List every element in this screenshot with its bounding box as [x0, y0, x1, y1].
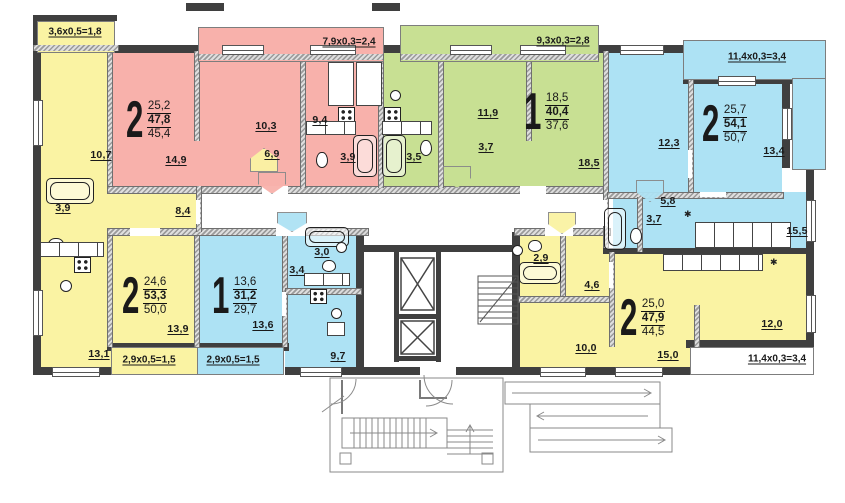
apartment-reduced-area: 44,5: [641, 326, 665, 339]
apartment-rooms-count: 2: [126, 100, 142, 140]
entrance-ramp: [505, 382, 672, 452]
room-area-label: 13,6: [252, 319, 273, 331]
apartment-total-area: 54,1: [723, 118, 747, 132]
apartment-total-area: 47,9: [641, 312, 665, 326]
apartment-living-area: 13,6: [233, 276, 257, 290]
apartment-label: 2 25,2 47,8 45,4: [126, 100, 171, 141]
apartment-total-area: 31,2: [233, 290, 257, 304]
column: [482, 453, 493, 464]
balcony-area-label: 2,9x0,5=1,5: [122, 355, 175, 366]
room-area-label: 3,5: [406, 151, 421, 163]
apartment-label: 1 18,5 40,4 37,6: [524, 92, 569, 133]
room-area-label: 12,0: [761, 318, 782, 330]
room-area-label: 11,9: [478, 107, 499, 119]
room-area-label: 18,5: [578, 157, 599, 169]
floor-plan: ✱ ✱: [0, 0, 845, 503]
room-area-label: 9,4: [312, 114, 327, 126]
room-area-label: 12,3: [658, 137, 679, 149]
apartment-label: 2 25,7 54,1 50,7: [702, 104, 747, 145]
apartment-reduced-area: 50,7: [723, 132, 747, 145]
balcony-area-label: 11,4x0,3=3,4: [728, 52, 786, 63]
room-area-label: 3,7: [478, 141, 493, 153]
entry-steps: [447, 425, 493, 454]
balcony-area-label: 3,6x0,5=1,8: [48, 27, 101, 38]
apartment-living-area: 25,0: [641, 298, 665, 312]
room-area-label: 6,9: [264, 148, 279, 160]
balcony-area-label: 9,3x0,3=2,8: [536, 36, 589, 47]
room-area-label: 9,7: [330, 350, 345, 362]
room-area-label: 13,4: [763, 145, 784, 157]
apartment-reduced-area: 29,7: [233, 304, 257, 317]
apartment-total-area: 40,4: [545, 106, 569, 120]
room-area-label: 14,9: [165, 154, 186, 166]
balcony-area-label: 2,9x0,5=1,5: [206, 355, 259, 366]
room-area-label: 10,0: [575, 342, 596, 354]
apartment-living-area: 24,6: [143, 276, 167, 290]
apartment-rooms-count: 1: [212, 276, 228, 316]
room-area-label: 13,9: [167, 323, 188, 335]
apartment-rooms-count: 1: [524, 92, 540, 132]
apartment-total-area: 53,3: [143, 290, 167, 304]
staircase-core: [478, 276, 518, 324]
apartment-living-area: 25,2: [147, 100, 171, 114]
room-area-label: 13,1: [88, 348, 109, 360]
elevator-shaft: [401, 258, 434, 310]
apartment-label: 1 13,6 31,2 29,7: [212, 276, 257, 317]
room-area-label: 5,8: [660, 195, 675, 207]
entrance-structure: [322, 375, 672, 472]
apartment-total-area: 47,8: [147, 114, 171, 128]
apartment-reduced-area: 37,6: [545, 120, 569, 133]
room-area-label: 2,9: [533, 252, 548, 264]
room-area-label: 10,7: [90, 149, 111, 161]
plan-linework: [0, 0, 845, 503]
apartment-reduced-area: 50,0: [143, 304, 167, 317]
room-area-label: 4,6: [584, 279, 599, 291]
room-area-label: 3,9: [55, 202, 70, 214]
apartment-living-area: 18,5: [545, 92, 569, 106]
elevator-shaft: [401, 321, 434, 354]
entrance-stairs: [342, 418, 447, 448]
balcony-area-label: 7,9x0,3=2,4: [322, 37, 375, 48]
apartment-rooms-count: 2: [702, 104, 718, 144]
room-area-label: 3,7: [646, 213, 661, 225]
room-area-label: 15,5: [786, 225, 807, 237]
apartment-rooms-count: 2: [122, 276, 138, 316]
balcony-area-label: 11,4x0,3=3,4: [748, 354, 806, 365]
room-area-label: 8,4: [175, 205, 190, 217]
column: [340, 453, 351, 464]
room-area-label: 3,4: [289, 264, 304, 276]
room-area-label: 3,0: [314, 246, 329, 258]
apartment-reduced-area: 45,4: [147, 128, 171, 141]
room-area-label: 10,3: [255, 120, 276, 132]
apartment-living-area: 25,7: [723, 104, 747, 118]
room-area-label: 3,9: [340, 151, 355, 163]
apartment-label: 2 25,0 47,9 44,5: [620, 298, 665, 339]
apartment-rooms-count: 2: [620, 298, 636, 338]
room-area-label: 15,0: [657, 349, 678, 361]
apartment-label: 2 24,6 53,3 50,0: [122, 276, 167, 317]
